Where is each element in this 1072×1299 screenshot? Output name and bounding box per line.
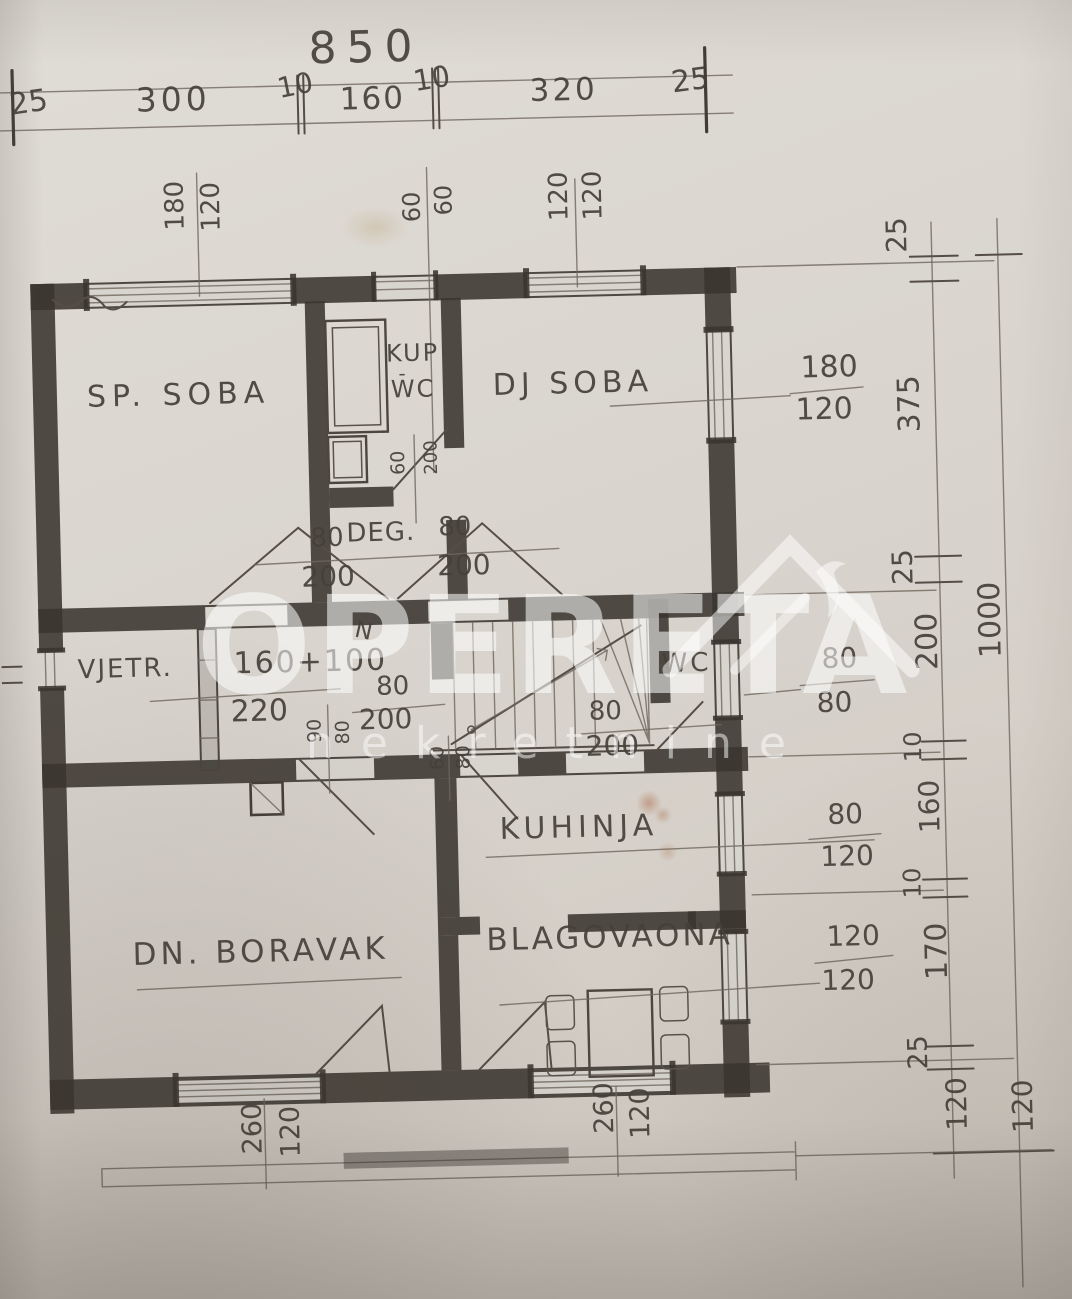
frac-dj-window-num: 180 <box>800 352 858 383</box>
tag-dj-window-width: 120 <box>545 171 572 221</box>
dim-right-375: 375 <box>894 375 925 433</box>
frac-deg-right-num: 80 <box>438 514 472 541</box>
tag-bath-door-width: 60 <box>389 450 409 475</box>
tag-bottom-left-sill: 120 <box>277 1106 305 1158</box>
dim-right-25a: 25 <box>883 217 912 253</box>
frac-deg-right-den: 200 <box>437 551 491 580</box>
frac-wc-window-den: 80 <box>816 688 852 717</box>
tag-sp-window-sill: 120 <box>198 182 225 232</box>
tag-dj-window-sill: 120 <box>579 170 606 220</box>
dim-top-seg-25a: 25 <box>8 86 50 121</box>
frac-deg-left-den: 200 <box>301 562 355 591</box>
dim-right-120-inner: 120 <box>943 1077 972 1131</box>
frac-deg-left-num: 80 <box>310 525 344 552</box>
tag-kitchen-door-b: 80 <box>454 745 474 770</box>
tag-bottom-right-width: 260 <box>590 1082 618 1134</box>
room-wc: WC <box>661 650 711 677</box>
bathroom-fixtures <box>325 320 389 483</box>
frac-stair-door-den: 200 <box>585 732 639 761</box>
dim-right-120-outer: 120 <box>1009 1079 1038 1133</box>
tag-bath-door-height: 200 <box>422 440 441 475</box>
room-kup-line1: KUP <box>386 340 440 365</box>
room-vjetr: VJETR. <box>77 655 173 683</box>
frac-dj-window-den: 120 <box>795 394 853 425</box>
dim-right-10a: 10 <box>901 731 926 762</box>
dim-top-total: 850 <box>308 25 423 72</box>
terrace <box>102 1142 797 1197</box>
dim-top-seg-160: 160 <box>339 83 405 116</box>
tag-kitchen-door-a: 60 <box>428 746 448 771</box>
dim-top-seg-10a: 10 <box>275 68 315 102</box>
partition-wall <box>198 629 219 770</box>
frac-kitchen-window-num: 80 <box>827 800 863 829</box>
room-blagovaona: BLAGOVAONA <box>486 919 733 956</box>
frac-stair-door-num: 80 <box>588 698 622 725</box>
dim-right-160: 160 <box>915 779 944 833</box>
tag-bath-window-sill: 60 <box>431 185 456 216</box>
tag-boravak-door-a: 90 <box>305 719 325 744</box>
frac-wc-window-num: 80 <box>821 644 857 673</box>
room-dj-soba: DJ SOBA <box>492 367 653 401</box>
dim-top-seg-10b: 10 <box>411 62 452 97</box>
dim-right-total: 1000 <box>975 581 1007 658</box>
dim-right-25b: 25 <box>889 549 918 585</box>
tag-boravak-door-b: 80 <box>334 720 354 745</box>
dim-top-seg-320: 320 <box>529 74 598 107</box>
drawing-sheet: 850 25 300 10 160 10 320 25 180 120 60 6… <box>0 0 1072 1299</box>
frac-hall-door-den: 200 <box>359 705 413 734</box>
room-kuhinja: KUHINJA <box>499 811 658 845</box>
frac-hall-door-num: 80 <box>376 673 410 700</box>
frac-dining-window-num: 120 <box>826 922 880 951</box>
frac-entry-den: 220 <box>230 696 288 727</box>
dim-right-200: 200 <box>912 612 943 670</box>
dim-right-10b: 10 <box>900 867 925 898</box>
room-sp-soba: SP. SOBA <box>87 378 271 412</box>
dim-top-seg-25b: 25 <box>670 64 712 99</box>
room-deg: DEG. <box>346 519 415 547</box>
tag-bottom-right-sill: 120 <box>626 1087 654 1139</box>
frac-entry-num: 160+100 <box>233 646 387 680</box>
door-openings <box>205 596 644 782</box>
chimney <box>250 782 283 815</box>
tag-sp-window-width: 180 <box>162 181 189 231</box>
room-dn-boravak: DN. BORAVAK <box>132 934 389 971</box>
dim-right-25c: 25 <box>904 1035 932 1070</box>
dim-right-170: 170 <box>922 922 953 980</box>
frac-kitchen-window-den: 120 <box>820 842 874 871</box>
dim-top-seg-300: 300 <box>135 82 211 117</box>
tag-bottom-left-width: 260 <box>239 1102 267 1154</box>
frac-dining-window-den: 120 <box>821 966 875 995</box>
tag-bath-window-width: 60 <box>399 191 424 222</box>
floor-plan-scan: 850 25 300 10 160 10 320 25 180 120 60 6… <box>0 0 1072 1299</box>
room-kup-line2: WC <box>391 376 436 401</box>
